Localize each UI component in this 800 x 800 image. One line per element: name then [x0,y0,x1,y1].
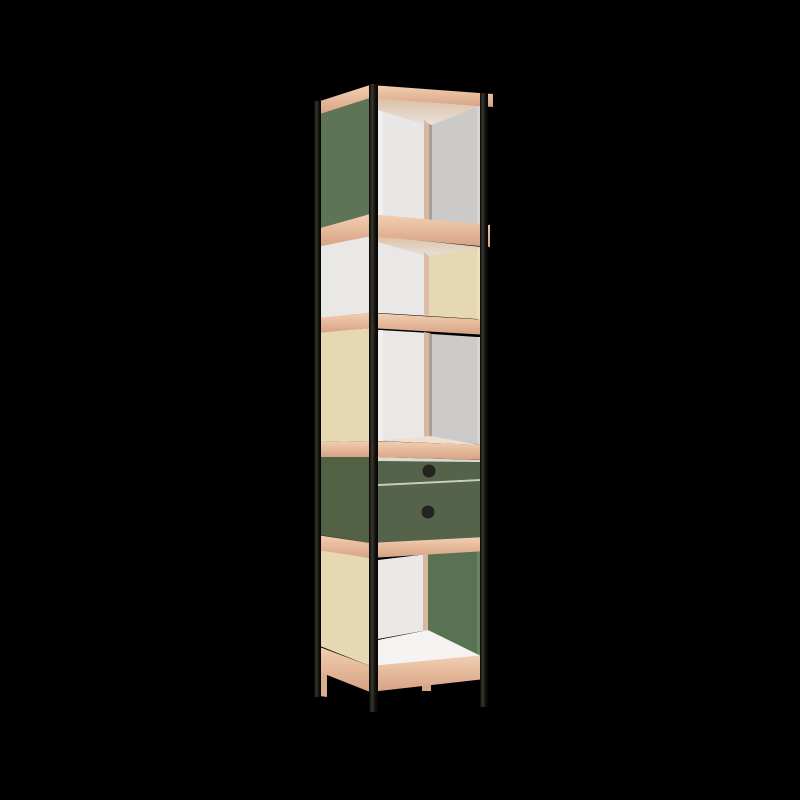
post-left [314,101,321,697]
bay3-right-wall [432,334,477,444]
bay1-back-wall [378,110,430,221]
bay3-left-sliver [378,330,383,441]
bay1-right-wall [432,107,477,225]
left-foot-wood [320,671,327,697]
shelf-3-left-edge [317,441,370,457]
render-canvas [0,0,800,800]
bay1-left-sliver [378,110,383,216]
drawer-1-knob [423,465,436,478]
side-panel-4-green [320,456,370,543]
shelf-unit [314,84,493,712]
bay2-corner-wood-strip [424,252,429,316]
side-panel-1-green [320,98,370,229]
shelf-svg [0,0,800,800]
bay3-corner-wood-strip [424,332,429,438]
post-right [480,93,488,707]
bay2-right-wall [429,248,477,319]
side-panel-3-cream [320,328,370,442]
bay4-back-wall [378,554,428,639]
side-panel-2-white [320,236,370,318]
drawer-2-knob [422,506,435,519]
bay1-corner-edge [429,124,432,221]
bay4-corner-wood-strip [423,554,428,633]
bay1-corner-wood-strip [424,120,429,221]
post-front [369,84,378,712]
bay3-corner-edge [429,333,432,437]
side-panel-5-cream [320,549,370,666]
bay3-back-wall [378,330,430,441]
